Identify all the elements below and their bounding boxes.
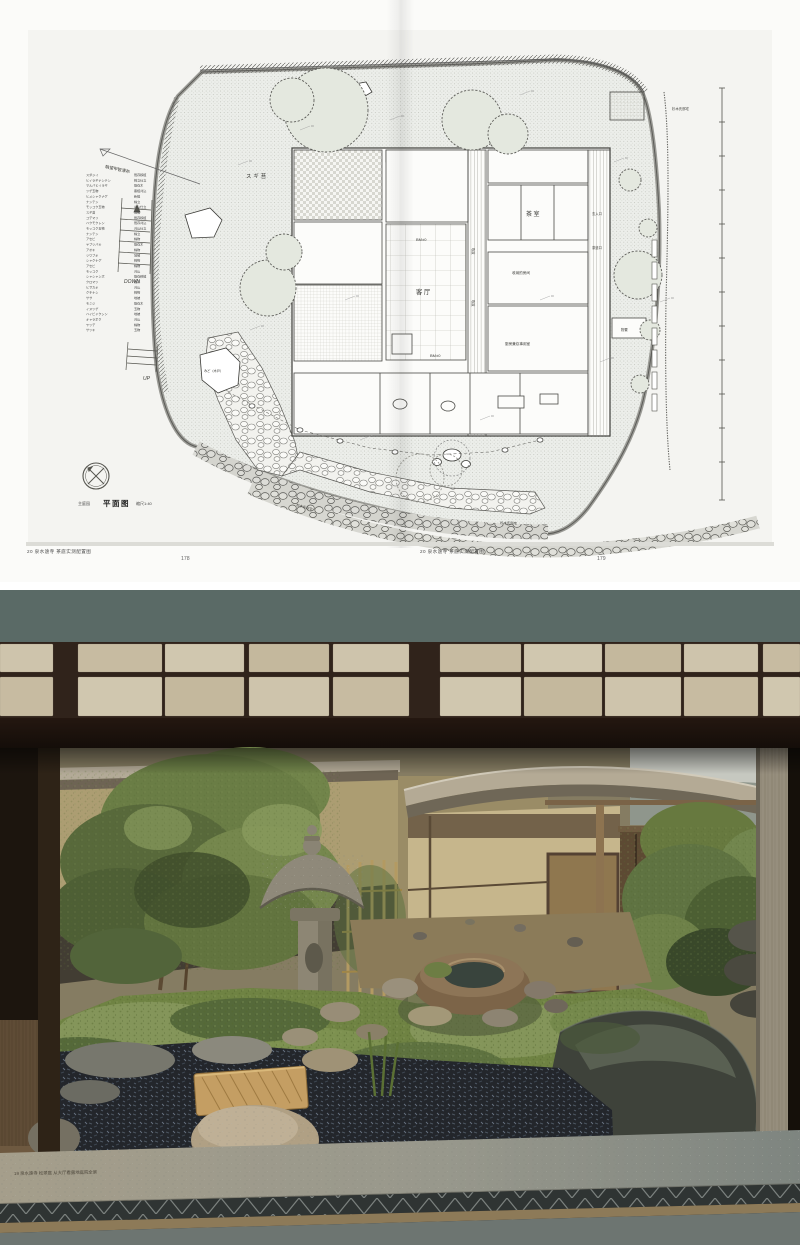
page-gutter-shadow [386, 0, 414, 548]
legend-plant-note: 既存刈込 [134, 220, 146, 225]
legend-plant-note: 新植 [134, 193, 140, 198]
legend-plant-note: 刈込 [134, 316, 140, 321]
label-entrance: 玄入口 [592, 211, 602, 216]
legend-plant-note: 株物 [134, 258, 140, 263]
label-up: UP [143, 376, 151, 382]
shoji-sheen [0, 642, 800, 720]
fixture [441, 401, 455, 411]
plan-scale: 缩尺1:40 [136, 500, 153, 506]
legend-plant-name: ヒメシャクナゲ [86, 193, 108, 198]
room-left-a [294, 222, 382, 284]
legend-plant-note: 寄植刈込 [134, 188, 146, 193]
legend-plant-note: 玉物 [134, 306, 140, 311]
label-void-2: 吹抜 [471, 300, 476, 307]
legend-plant-note: 株立 [134, 199, 140, 204]
legend-plant-note: 刈込 [134, 284, 140, 289]
label-storage: 收纳的房间 [512, 270, 530, 275]
right-page-footer: 20 泉水遠寺 茶庭实测配置图 [420, 549, 484, 555]
legend-plant-note: 地被 [134, 209, 140, 214]
legend-plant-note: 刈込 [134, 268, 140, 273]
legend-plant-name: ハクモクレン [86, 220, 105, 225]
label-bm-1: BM±0 [416, 237, 427, 242]
legend-plant-name: アオキ [86, 247, 95, 252]
blurred-transom-band [0, 590, 800, 642]
legend-plant-note: 刈込仕立 [134, 226, 146, 231]
legend-plant-name: クチナシ [86, 290, 98, 295]
lintel-beam [0, 718, 800, 752]
veranda [588, 150, 610, 436]
legend-plant-note: 株物 [134, 290, 140, 295]
legend-plant-name: ヤブツバキ [86, 242, 101, 247]
room-terrace [294, 150, 382, 220]
legend-plant-note: 既存木 [134, 300, 143, 305]
legend-plant-note: 地被 [134, 295, 140, 300]
garden-photograph: 19 泉水遠寺 松翠庭 从大厅看露地庭院全景 [0, 590, 800, 1245]
legend-plant-note: 株物 [134, 263, 140, 268]
beam-shadow [0, 748, 800, 774]
label-moss-area: スギ苔 [246, 172, 268, 180]
legend-plant-note: 既存移植 [134, 215, 146, 220]
plan-title: 平面图 [103, 499, 130, 508]
right-post [756, 748, 800, 1196]
legend-plant-name: ツゲ玉物 [86, 188, 98, 193]
legend-plant-name: モッコク [86, 268, 98, 273]
legend-plant-note: 既存木 [134, 183, 143, 188]
right-page-number: 179 [597, 556, 606, 562]
legend-plant-name: ヒサカキ [86, 284, 98, 289]
label-void-1: 吹抜 [471, 248, 476, 255]
legend-plant-note: 既存 [134, 279, 140, 284]
label-kitchen: 厨房兼炊事用室 [505, 341, 531, 346]
legend-plant-note: 既存木 [134, 242, 143, 247]
room-kitchen [488, 306, 588, 371]
legend-plant-name: モミジ [86, 301, 95, 305]
legend-plant-note: 玉物 [134, 327, 140, 332]
legend-plant-name: イヌツゲ [86, 306, 98, 311]
fixture [540, 394, 558, 404]
legend-plant-name: ヒイラギナンテン [86, 177, 111, 182]
legend-plant-name: アセビ [86, 236, 95, 241]
label-tea-door: 茶道口 [592, 245, 602, 250]
label-main-hall: 客厅 [416, 287, 432, 296]
label-gate: みど（木戸） [204, 368, 223, 373]
legend-plant-name: スギ苔 [86, 209, 95, 214]
legend-plant-name: ヤツデ [86, 322, 96, 327]
legend-plant-name: アセビ [86, 263, 95, 268]
plan-title-prefix: 主庭园 [78, 500, 90, 506]
left-frame-post [38, 748, 60, 1188]
legend-plant-name: サツキ [86, 327, 95, 332]
legend-plant-name: ナンテン [86, 199, 98, 204]
legend-plant-note: 地被 [134, 252, 140, 257]
legend-plant-note: 株物 [134, 247, 140, 252]
legend-plant-name: シャクナゲ [86, 258, 101, 263]
legend-plant-name: ハイビャクシン [86, 311, 108, 316]
legend-plant-note: 株立 [134, 231, 140, 236]
corner-structure [610, 92, 644, 120]
label-tea-room: 茶室 [526, 210, 541, 218]
legend-plant-note: 既存移植 [134, 172, 146, 177]
legend-plant-note: 株立仕立 [134, 177, 146, 182]
legend-plant-name: ツワブキ [86, 252, 98, 257]
left-page-footer: 20 泉水遠寺 茶庭实测配置图 [27, 549, 91, 555]
legend-plant-name: ナンテン [86, 231, 98, 236]
legend-plant-name: ササ [86, 295, 92, 300]
label-bm-2: BM±0 [430, 353, 441, 358]
legend-plant-note: 株物 [134, 236, 140, 241]
legend-plant-name: モッコク玉物 [86, 204, 105, 209]
garden-photo-svg: 19 泉水遠寺 松翠庭 从大厅看露地庭院全景 [0, 590, 800, 1245]
legend-plant-name: クロマツ [86, 279, 98, 284]
legend-plant-name: コデマリ [86, 215, 98, 220]
room-anteroom [488, 150, 588, 183]
left-page-number: 178 [181, 556, 190, 562]
legend-plant-name: キャラボク [86, 316, 101, 321]
room-left-grid [294, 285, 382, 361]
legend-plant-note: 既存移植 [134, 274, 146, 279]
legend-plant-name: モッコク玉物 [86, 226, 105, 231]
label-neighbor-bottom-2: 杉木氏邸宅 [500, 520, 518, 526]
label-neighbor-top: 杉木氏邸宅 [672, 106, 690, 111]
page-bottom-edge [26, 542, 774, 546]
fixture [498, 396, 524, 408]
legend-plant-note: 株物 [134, 322, 140, 327]
legend-plant-name: スダジイ [86, 172, 98, 177]
legend-plant-name: シャシャンボ [86, 274, 105, 279]
fern-cluster [70, 928, 182, 984]
room-storage [488, 252, 588, 304]
label-shed: 物置 [621, 327, 628, 332]
book-spread: 眺望甲智漂布 スギ苔 DOWN UP みど（木戸） 茶室 客厅 BM±0 BM±… [0, 0, 800, 582]
legend-plant-note: 刈込仕立 [134, 204, 146, 209]
legend-plant-note: 地被 [134, 311, 140, 316]
legend-plant-name: マルバヒイラギ [86, 183, 108, 188]
